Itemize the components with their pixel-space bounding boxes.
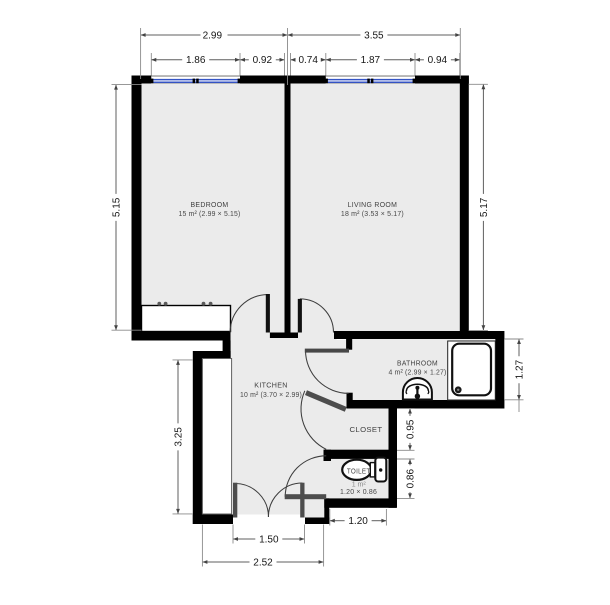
svg-text:18 m² (3.53 × 5.17): 18 m² (3.53 × 5.17) <box>341 209 404 218</box>
svg-text:TOILET: TOILET <box>347 466 371 475</box>
svg-text:0.94: 0.94 <box>428 55 448 66</box>
svg-text:1.87: 1.87 <box>361 55 381 66</box>
svg-text:1.86: 1.86 <box>186 55 206 66</box>
svg-text:0.95: 0.95 <box>405 419 416 439</box>
svg-text:BEDROOM: BEDROOM <box>191 200 229 209</box>
svg-text:4 m² (2.99 × 1.27): 4 m² (2.99 × 1.27) <box>389 368 447 377</box>
svg-text:0.86: 0.86 <box>405 469 416 489</box>
svg-text:LIVING ROOM: LIVING ROOM <box>348 200 398 209</box>
svg-text:10 m² (3.70 × 2.99): 10 m² (3.70 × 2.99) <box>240 390 302 399</box>
svg-text:5.17: 5.17 <box>479 197 490 217</box>
svg-text:15 m² (2.99 × 5.15): 15 m² (2.99 × 5.15) <box>179 209 241 218</box>
svg-text:0.92: 0.92 <box>253 55 273 66</box>
svg-text:1.50: 1.50 <box>259 534 279 545</box>
svg-text:BATHROOM: BATHROOM <box>397 358 438 367</box>
svg-text:3.25: 3.25 <box>173 427 184 447</box>
svg-text:1.20 × 0.86: 1.20 × 0.86 <box>340 487 377 496</box>
svg-text:2.99: 2.99 <box>203 30 223 41</box>
svg-text:0.74: 0.74 <box>298 55 318 66</box>
svg-text:5.15: 5.15 <box>111 197 122 217</box>
svg-text:3.55: 3.55 <box>364 30 384 41</box>
svg-text:1.20: 1.20 <box>348 516 368 527</box>
svg-text:CLOSET: CLOSET <box>350 425 383 434</box>
svg-text:2.52: 2.52 <box>253 557 273 568</box>
svg-text:1.27: 1.27 <box>514 359 525 379</box>
svg-text:KITCHEN: KITCHEN <box>254 380 288 389</box>
